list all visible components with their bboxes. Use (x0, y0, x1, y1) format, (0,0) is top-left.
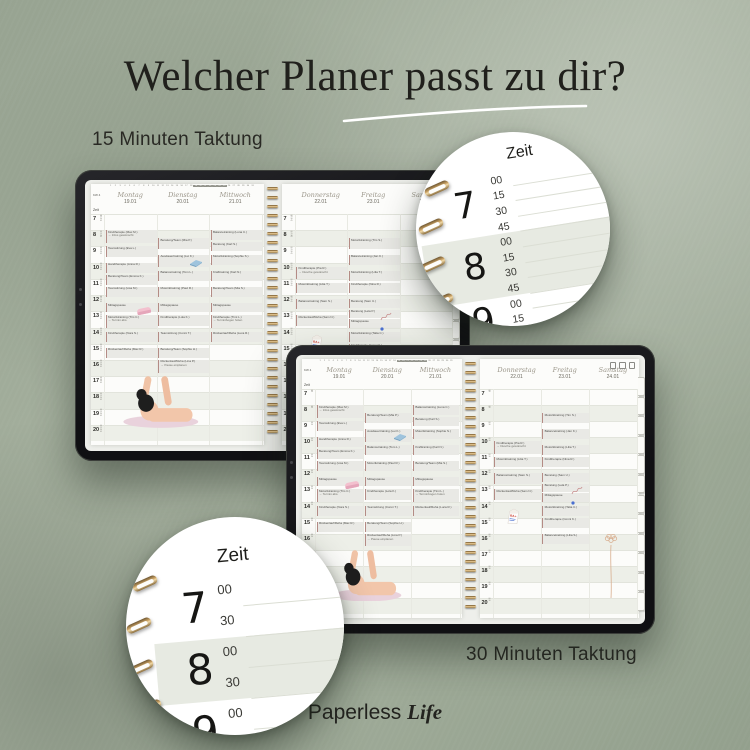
hour-label: 11 (93, 281, 99, 287)
spiral-ring (465, 569, 476, 572)
spiral-ring (267, 430, 278, 433)
callout-15min: Zeit0015304500153045001530789 (416, 132, 610, 326)
sticker-book[interactable] (189, 254, 203, 272)
day-name: Dienstag (373, 366, 402, 374)
planner-event[interactable]: Rückenlauf/Reha (Sam N.) (494, 489, 541, 499)
planner-event[interactable]: Mittagspause (211, 303, 262, 312)
spiral-ring (267, 385, 278, 388)
event-title: Mittagspause (367, 477, 385, 481)
event-title: Motoriktraining (Tim S.) (351, 238, 382, 242)
hour-label: 7 (284, 216, 287, 222)
event-title: Mittagspause (415, 477, 433, 481)
day-date: 20.01 (157, 199, 210, 205)
spiral-ring (267, 340, 278, 343)
event-title: Motoriktraining (Lilia T.) (299, 283, 330, 287)
minute-ticks: 00153045 (100, 329, 102, 337)
planner-event[interactable]: Kindtherapie (Nina R.) (542, 457, 589, 467)
spiral-ring (267, 421, 278, 424)
planner-event[interactable]: Kindtherapie (Max M.)→ Infos gewünscht (106, 230, 157, 243)
event-title: Mittagspause (319, 477, 337, 481)
planner-event[interactable]: Teamsitzung (Lisa M.) (106, 287, 157, 297)
hour-label: 8 (482, 407, 485, 413)
spiral-ring (267, 358, 278, 361)
kw-label: KW 4 (304, 368, 311, 372)
planner-event[interactable]: Motoriktraining (Lilia T.) (349, 271, 400, 281)
minute-ticks: 00153045 (100, 280, 102, 288)
label-15min-taktung: 15 Minuten Taktung (92, 129, 263, 151)
spiral-ring (267, 205, 278, 208)
hour-label: 9 (93, 248, 96, 254)
hour-label: 18 (93, 394, 99, 400)
minute-ticks: 0030 (489, 567, 491, 571)
hour-label: 19 (93, 411, 99, 417)
hour-label: 13 (284, 313, 290, 319)
planner-event[interactable]: Beratung/Team (Mia P.) (365, 413, 412, 423)
hour-label: 14 (304, 504, 310, 510)
minute-ticks: 00153045 (100, 345, 102, 353)
event-title: Motoriktraining (Paul R.) (367, 461, 399, 465)
minute-label-magnified: 15 (474, 189, 506, 206)
index-tab[interactable] (638, 377, 645, 396)
event-title: Rückenlauf/Reha (Sam N.) (299, 315, 335, 319)
event-title: Mittagspause (351, 319, 369, 323)
hour-label: 17 (93, 378, 99, 384)
minute-label-magnified: 15 (494, 312, 526, 326)
event-note: → Infos gewünscht (108, 233, 134, 237)
event-note: → Pause einplanen (161, 363, 187, 367)
planner-event[interactable]: Krafttraining (Karl N.) (413, 445, 460, 455)
index-tab[interactable] (638, 573, 645, 592)
row-line-magnified (513, 166, 610, 186)
event-title: Beratung/Team (Emma K.) (108, 275, 144, 279)
spiral-ring (465, 371, 476, 374)
day-date: 19.01 (104, 199, 157, 205)
planner-screen-30min: 7003080030900301000301100301200301300301… (296, 355, 645, 624)
hour-gridline (480, 389, 640, 390)
hour-gridline (480, 469, 640, 470)
planner-event[interactable]: Balancetraining (Jan K.) (542, 429, 589, 439)
spiral-ring (267, 304, 278, 307)
planner-event[interactable]: Kindtherapie (Pia R.)→ Dusche gewünscht (494, 441, 541, 454)
hour-label: 10 (482, 439, 488, 445)
event-title: Mittagspause (161, 303, 179, 307)
spiral-ring (267, 241, 278, 244)
event-title: Mittagspause (108, 303, 126, 307)
spiral-ring (267, 403, 278, 406)
event-title: Motoriktraining (Sophie S.) (213, 255, 249, 259)
zeit-heading: Zeit (216, 544, 249, 569)
planner-event[interactable]: Rückenlauf/Reha (Luca R.) (413, 506, 460, 516)
minute-ticks: 0030 (311, 487, 313, 491)
planner-event[interactable]: Balancetraining (Luna C.) (413, 405, 460, 415)
day-date: 23.01 (347, 199, 400, 205)
spiral-ring (465, 488, 476, 491)
day-header: Montag19.01 (315, 366, 363, 380)
planner-event[interactable]: Motoriktraining (Talia C.) (542, 506, 589, 516)
event-note: → Termin abs. (319, 492, 338, 496)
minute-ticks: 00153045 (100, 394, 102, 402)
planner-event[interactable]: Kindtherapie (Timi L.)→ Terminbogen hole… (413, 489, 460, 502)
minute-ticks: 00153045 (100, 264, 102, 272)
spiral-ring (267, 322, 278, 325)
event-title: Teamsitzung (Conni T.) (161, 332, 192, 336)
spiral-ring (267, 268, 278, 271)
hour-label: 13 (93, 313, 99, 319)
spiral-ring (267, 367, 278, 370)
row-line-magnified (535, 305, 610, 325)
page-view-icon[interactable] (629, 362, 636, 369)
day-header: Freitag23.01 (347, 191, 400, 205)
minute-ticks: 0030 (489, 583, 491, 587)
event-title: Beratung/Team (Mia S.) (415, 461, 447, 465)
hour-label: 12 (284, 297, 290, 303)
sticker-eraser[interactable] (345, 476, 359, 494)
event-title: Kindtherapie (Nina R.) (545, 457, 575, 461)
event-title: Balancetraining (Lilia S.) (545, 534, 578, 538)
planner-event[interactable]: Balancetraining (Jan K.) (349, 255, 400, 265)
minute-ticks: 00153045 (291, 280, 293, 288)
spiral-ring (267, 349, 278, 352)
planner-event[interactable]: Krafttraining (Karl N.) (211, 271, 262, 281)
sticker-milk[interactable]: RA+ (507, 508, 520, 530)
day-separator (460, 389, 461, 618)
hour-label: 13 (482, 487, 488, 493)
minute-ticks: 00153045 (291, 297, 293, 305)
index-tab[interactable] (638, 592, 645, 611)
index-tab[interactable] (638, 455, 645, 474)
planner-event[interactable]: Kindtherapie (Nora S.) (106, 332, 157, 342)
planner-event[interactable]: Rückenlauf/Reha (Max R.) (106, 348, 157, 358)
minute-ticks: 0030 (489, 487, 491, 491)
hour-label: 17 (482, 552, 488, 558)
sticker-bluedot[interactable] (571, 492, 575, 510)
index-tab[interactable] (638, 397, 645, 416)
planner-page: 7001530458001530459001530451000153045110… (91, 184, 264, 445)
planner-event[interactable]: Teamsitzung (Eva L.) (106, 246, 157, 256)
event-title: Krafttraining (Karl N.) (213, 271, 241, 275)
minute-ticks: 00153045 (291, 264, 293, 272)
event-title: Handtherapie (Anna R.) (319, 437, 351, 441)
minute-ticks: 00153045 (100, 378, 102, 386)
hour-label: 8 (304, 407, 307, 413)
spiral-binding (462, 355, 480, 624)
hour-label: 9 (304, 423, 307, 429)
spiral-ring (267, 187, 278, 190)
event-title: Rückenlauf/Reha (Max R.) (108, 348, 143, 352)
planner-event[interactable]: Beratung (Sam U.) (349, 299, 400, 308)
planner-event[interactable]: Mittagspause (413, 477, 460, 486)
planner-event[interactable]: Teamsitzung (Eva L.) (317, 421, 364, 431)
hour-label: 8 (93, 232, 96, 238)
day-date: 21.01 (209, 199, 262, 205)
planner-event[interactable]: Mittagspause (158, 303, 209, 312)
event-title: Beratung (Karl S.) (415, 417, 439, 421)
hour-label-magnified: 9 (190, 706, 221, 735)
hour-label: 7 (304, 391, 307, 397)
camera-icon (290, 461, 293, 464)
event-title: Krafttraining (Karl N.) (415, 445, 443, 449)
hour-label: 19 (482, 584, 488, 590)
event-title: Motoriktraining (Tim S.) (545, 413, 576, 417)
day-separator (493, 389, 494, 618)
event-title: Balancetraining (Sam S.) (299, 299, 332, 303)
hour-label: 20 (93, 427, 99, 433)
planner-event[interactable]: Motoriktraining (Sophie S.) (413, 429, 460, 439)
day-name: Donnerstag (497, 366, 535, 374)
day-header: Mittwoch21.01 (209, 191, 262, 205)
event-title: Beratung (Lela P.) (545, 484, 569, 488)
day-separator (262, 214, 263, 445)
planner-event[interactable]: Balancetraining (Tom L.) (365, 445, 412, 455)
planner-event[interactable]: Kindtherapie (Timi L.)→ Terminbogen hole… (211, 315, 262, 328)
index-tab[interactable] (638, 495, 645, 514)
planner-event[interactable]: Beratung/Team (Mia S.) (413, 461, 460, 471)
planner-event[interactable]: Balancetraining (Lilia S.) (542, 534, 589, 544)
planner-event[interactable]: Balancetraining (Luna C.) (211, 230, 262, 240)
spiral-ring (267, 313, 278, 316)
planner-event[interactable]: Teamsitzung (Conni T.) (365, 506, 412, 516)
view-toggle-icons[interactable] (610, 362, 636, 369)
event-title: Motoriktraining (Sophie S.) (415, 429, 451, 433)
hour-label: 7 (93, 216, 96, 222)
zeit-column-label: Zeit (304, 383, 310, 387)
planner-event[interactable]: Kindtherapie (Nina R.) (349, 283, 400, 293)
minute-ticks: 0030 (311, 455, 313, 459)
minute-ticks: 0030 (489, 391, 491, 395)
index-tab[interactable] (638, 416, 645, 435)
row-line-magnified (518, 197, 610, 217)
sticker-eraser[interactable] (137, 302, 151, 320)
minute-ticks: 00153045 (100, 248, 102, 256)
planner-event[interactable]: Handtherapie (Anna R.) (106, 263, 157, 273)
event-title: Balancetraining (Sam S.) (497, 473, 530, 477)
event-title: Balancetraining (Luna C.) (415, 405, 449, 409)
sticker-bluedot[interactable] (380, 318, 384, 336)
planner-event[interactable]: Rückenlauf/Reha (Lina P.)→ Pause einplan… (365, 534, 412, 547)
planner-event[interactable]: Kindtherapie (Lola K.) (365, 489, 412, 499)
spiral-ring (267, 223, 278, 226)
sticker-flower[interactable] (603, 534, 619, 598)
planner-event[interactable]: Handtherapie (Anna R.) (317, 437, 364, 447)
day-name: Freitag (553, 366, 577, 374)
day-date: 24.01 (589, 374, 637, 380)
event-title: Beratung/Team (Mia S.) (213, 287, 245, 291)
spiral-ring (465, 389, 476, 392)
zeit-column-label: Zeit (93, 208, 99, 212)
event-title: Beratung/Team (Mia P.) (161, 238, 192, 242)
spiral-ring (465, 542, 476, 545)
planner-event[interactable]: Kindtherapie (Conni K.) (542, 518, 589, 528)
day-date: 20.01 (363, 374, 411, 380)
date-strip-day[interactable]: 31 (250, 185, 255, 187)
event-title: Kindtherapie (Lola K.) (367, 489, 396, 493)
minute-ticks: 00153045 (291, 329, 293, 337)
hour-label: 14 (482, 504, 488, 510)
spiral-ring (267, 376, 278, 379)
planner-event[interactable]: Beratung/Team (Sophie H.) (158, 348, 209, 358)
hour-label: 18 (482, 568, 488, 574)
planner-page: 7003080030900301000301100301200301300301… (480, 359, 640, 618)
planner-event[interactable]: Beratung (Lela P.) (349, 310, 400, 319)
event-title: Motoriktraining (Lilia T.) (545, 445, 576, 449)
planner-event[interactable]: Beratung/Team (Emma K.) (106, 275, 157, 285)
event-title: Kindtherapie (Nora S.) (319, 506, 349, 510)
planner-event[interactable]: Motoriktraining (Lilia T.) (542, 445, 589, 455)
planner-event[interactable]: Rückenlauf/Reha (Luca R.) (211, 332, 262, 342)
day-name: Freitag (361, 191, 385, 199)
planner-event[interactable]: Kindtherapie (Nora S.) (317, 506, 364, 516)
planner-event[interactable]: Motoriktraining (Paul R.) (158, 287, 209, 297)
event-title: Handtherapie (Anna R.) (108, 263, 140, 267)
event-note: → Dusche gewünscht (299, 270, 328, 274)
spiral-ring (465, 362, 476, 365)
planner-event[interactable]: Rückenlauf/Reha (Lina P.)→ Pause einplan… (158, 360, 209, 373)
hour-label-magnified: 7 (451, 184, 480, 228)
spiral-ring (465, 380, 476, 383)
event-title: Rückenlauf/Reha (Luca R.) (213, 332, 249, 336)
date-strip-day[interactable]: 31 (449, 360, 453, 362)
hour-label: 12 (93, 297, 99, 303)
event-title: Beratung (Lela P.) (351, 310, 375, 314)
spiral-ring (465, 587, 476, 590)
spiral-ring (465, 407, 476, 410)
planner-event[interactable]: Beratung/Team (Sophie H.) (365, 522, 412, 532)
sticker-book[interactable] (393, 428, 407, 446)
minute-ticks: 0030 (489, 551, 491, 555)
hour-gridline (480, 405, 640, 406)
date-strip[interactable]: 1234567891011121314151617181920212223242… (108, 185, 255, 187)
row-line-magnified (254, 718, 344, 729)
planner-event[interactable]: Rückenlauf/Reha (Sam N.) (296, 315, 347, 325)
index-tab[interactable] (638, 553, 645, 572)
planner-event[interactable]: Motoriktraining (Lilia T.) (494, 457, 541, 467)
minute-ticks: 0030 (489, 471, 491, 475)
date-strip-day[interactable]: 23 (414, 360, 418, 362)
planner-event[interactable]: Beratung/Team (Mia S.) (211, 287, 262, 297)
index-tab[interactable] (638, 534, 645, 553)
minute-label-magnified: 30 (476, 205, 508, 222)
hour-gridline (91, 214, 264, 215)
spiral-ring (267, 259, 278, 262)
hour-label: 9 (482, 423, 485, 429)
planner-event[interactable]: Kindtherapie (Pia R.)→ Dusche gewünscht (296, 267, 347, 280)
hour-label: 16 (482, 536, 488, 542)
zeit-heading: Zeit (505, 142, 534, 164)
planner-event[interactable]: Motoriktraining (Tim S.) (542, 413, 589, 423)
date-strip[interactable]: 1234567891011121314151617181920212223242… (318, 360, 454, 362)
event-title: Balancetraining (Jan K.) (545, 429, 577, 433)
event-note: → Dusche gewünscht (497, 444, 526, 448)
planner-event[interactable]: Beratung (Karl S.) (413, 417, 460, 426)
day-date: 23.01 (541, 374, 589, 380)
spiral-ring (465, 461, 476, 464)
spiral-ring (267, 412, 278, 415)
day-name: Montag (118, 191, 143, 199)
planner-event[interactable]: Kindtherapie (Lola K.) (158, 315, 209, 325)
event-note: → Terminbogen holen (213, 318, 242, 322)
spiral-ring (267, 232, 278, 235)
camera-icon (79, 288, 82, 291)
day-name: Dienstag (168, 191, 197, 199)
planner-event[interactable]: Mittagspause (365, 477, 412, 486)
hour-label-magnified: 8 (185, 644, 216, 695)
minute-ticks: 00153045 (100, 361, 102, 369)
split-view-icon[interactable] (619, 362, 626, 369)
minute-ticks: 0030 (489, 535, 491, 539)
minute-label-magnified: 00 (491, 297, 523, 314)
hour-label: 15 (93, 346, 99, 352)
hour-label: 10 (284, 265, 290, 271)
planner-event[interactable]: Motoriktraining (Talia C.) (349, 332, 400, 342)
spiral-ring (465, 479, 476, 482)
event-title: Kindtherapie (Lola K.) (161, 315, 190, 319)
date-strip-day[interactable]: 21 (203, 185, 208, 187)
event-note: → Infos gewünscht (319, 408, 345, 412)
brand-second-text: Life (407, 700, 442, 724)
day-name: Donnerstag (302, 191, 340, 199)
event-title: Balancetraining (Luna C.) (213, 230, 247, 234)
camera-icon (79, 303, 82, 306)
planner-event[interactable]: Motoriktraining (Sophie S.) (211, 255, 262, 265)
event-note: → Termin abs. (108, 318, 127, 322)
day-date: 22.01 (295, 199, 348, 205)
event-title: Kindtherapie (Nora S.) (108, 332, 138, 336)
spiral-ring (267, 295, 278, 298)
planner-event[interactable]: Balancetraining (Sam S.) (296, 299, 347, 309)
event-title: Teamsitzung (Lisa M.) (108, 287, 137, 291)
planner-event[interactable]: Kindtherapie (Max M.)→ Infos gewünscht (317, 405, 364, 418)
day-header: Donnerstag22.01 (295, 191, 348, 205)
event-note: → Pause einplanen (367, 537, 393, 541)
day-header: Donnerstag22.01 (493, 366, 541, 380)
planner-event[interactable]: Mittagspause (349, 319, 400, 328)
day-header: Dienstag20.01 (157, 191, 210, 205)
minute-ticks: 00153045 (100, 313, 102, 321)
event-title: Rückenlauf/Reha (Sam N.) (497, 489, 533, 493)
planner-event[interactable]: Beratung (Karl S.) (211, 242, 262, 251)
day-header: Dienstag20.01 (363, 366, 411, 380)
index-tab[interactable] (638, 475, 645, 494)
planner-event[interactable]: Beratung (Sam U.) (542, 473, 589, 482)
planner-event[interactable]: Balancetraining (Tom L.) (158, 271, 209, 281)
minute-ticks: 0030 (489, 439, 491, 443)
minute-ticks: 0030 (489, 503, 491, 507)
event-title: Kindtherapie (Nina R.) (351, 283, 381, 287)
planner-event[interactable]: Motoriktraining (Lilia T.) (296, 283, 347, 293)
event-title: Teamsitzung (Conni T.) (367, 506, 398, 510)
planner-event[interactable]: Motoriktraining (Tim S.) (349, 238, 400, 248)
index-tab[interactable] (638, 436, 645, 455)
spiral-ring (465, 434, 476, 437)
minute-ticks: 00153045 (100, 232, 102, 240)
planner-event[interactable]: Balancetraining (Sam S.) (494, 473, 541, 483)
planner-event[interactable]: Teamsitzung (Conni T.) (158, 332, 209, 342)
planner-event[interactable]: Teamsitzung (Lisa M.) (317, 461, 364, 471)
hour-label: 7 (482, 391, 485, 397)
minute-ticks: 00153045 (291, 216, 293, 224)
camera-icon (290, 476, 293, 479)
day-date: 22.01 (493, 374, 541, 380)
spiral-ring (465, 497, 476, 500)
event-title: Beratung (Karl S.) (213, 242, 237, 246)
index-tab[interactable] (638, 514, 645, 533)
hour-band-magnified (154, 626, 344, 706)
event-title: Mittagspause (545, 493, 563, 497)
planner-event[interactable]: Beratung/Team (Mia P.) (158, 238, 209, 248)
grid-view-icon[interactable] (610, 362, 617, 369)
planner-event[interactable]: Beratung/Team (Emma K.) (317, 449, 364, 459)
planner-event[interactable]: Motoriktraining (Paul R.) (365, 461, 412, 471)
